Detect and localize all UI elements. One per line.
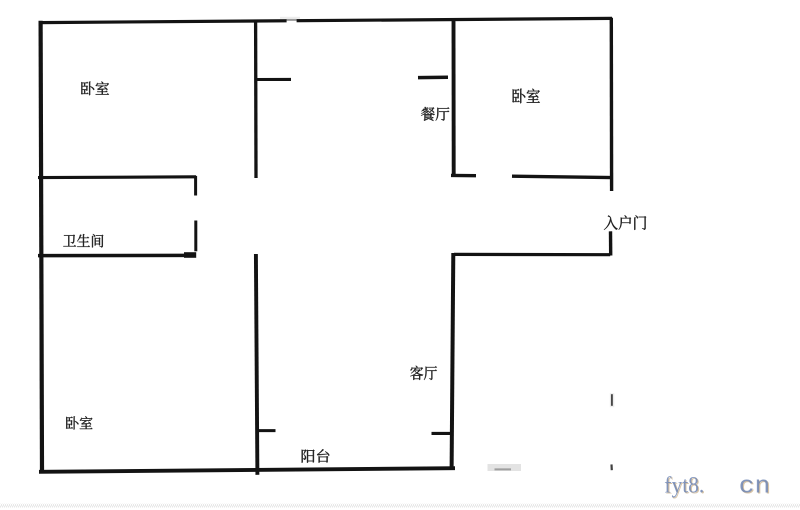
svg-text:fyt8.: fyt8. [664, 472, 704, 498]
svg-text:cn: cn [739, 473, 771, 500]
